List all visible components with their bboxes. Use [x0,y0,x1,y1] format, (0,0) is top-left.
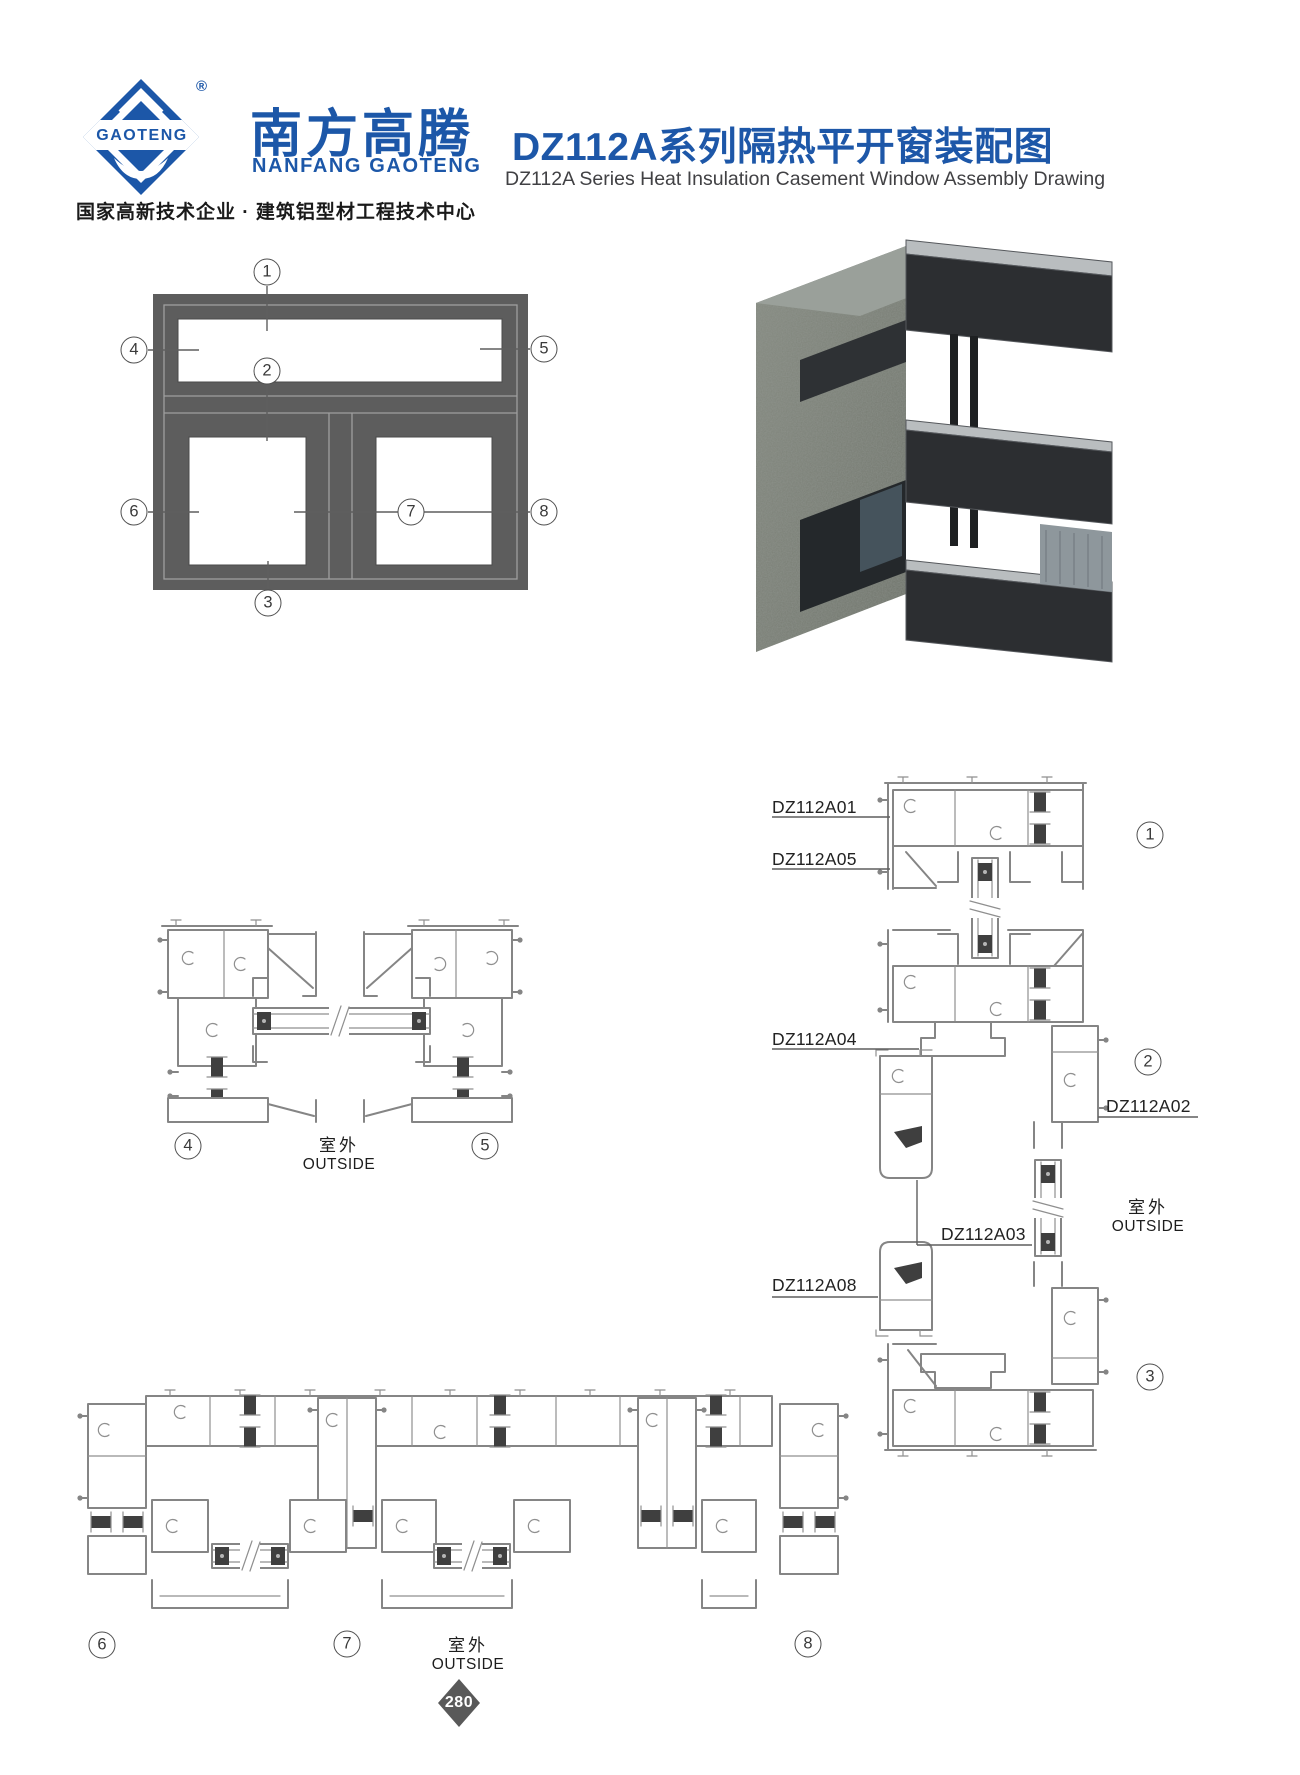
logo-wordmark: GAOTENG [94,127,190,145]
callout-label: 4 [129,341,138,360]
detail-callout-7: 7 [334,1631,361,1658]
callout-label: 4 [183,1137,192,1156]
callout-label: 5 [539,340,548,359]
callout-label: 2 [1143,1053,1152,1072]
elevation-callout-3: 3 [255,590,282,617]
elevation-callout-8: 8 [531,499,558,526]
page-number: 280 [445,1694,473,1712]
profile-label-dz112a03: DZ112A03 [941,1224,1026,1245]
callout-label: 7 [342,1635,351,1654]
detail-callout-4: 4 [175,1133,202,1160]
glazing-unit-vertical-2 [1032,1160,1064,1256]
callout-label: 7 [406,503,415,522]
callout-label: 6 [97,1636,106,1655]
brand-tagline: 国家高新技术企业 · 建筑铝型材工程技术中心 [76,197,476,224]
outside-label-en: OUTSIDE [432,1656,504,1674]
profile-label-dz112a02: DZ112A02 [1106,1096,1191,1117]
profile-label-dz112a04: DZ112A04 [772,1029,857,1050]
outside-label-cn: 室外 [1112,1193,1184,1218]
detail-callout-5: 5 [472,1133,499,1160]
callout-label: 3 [1145,1368,1154,1387]
section-detail-3 [876,1242,1109,1456]
profile-label-dz112a08: DZ112A08 [772,1275,857,1296]
callout-label: 6 [129,503,138,522]
outside-label-bottom: 室外 OUTSIDE [432,1631,504,1674]
outside-label-en: OUTSIDE [303,1156,375,1174]
detail-callout-6: 6 [89,1632,116,1659]
callout-label: 8 [803,1635,812,1654]
callout-label: 1 [1145,826,1154,845]
elevation-callout-5: 5 [531,336,558,363]
outside-label-en: OUTSIDE [1112,1218,1184,1236]
callout-label: 3 [263,594,272,613]
callout-label: 8 [539,503,548,522]
elevation-callout-4: 4 [121,337,148,364]
outside-label-cn: 室外 [432,1631,504,1656]
section-detail-6-7-8 [77,1390,848,1608]
doc-title-en: DZ112A Series Heat Insulation Casement W… [505,168,1065,191]
assembly-3d-render [756,240,1112,662]
callout-label: 2 [262,362,271,381]
elevation-callout-2: 2 [254,358,281,385]
callout-label: 1 [262,263,271,282]
outside-label-cn: 室外 [303,1131,375,1156]
profile-label-dz112a01: DZ112A01 [772,797,857,818]
detail-callout-8: 8 [795,1631,822,1658]
callout-label: 5 [480,1137,489,1156]
outside-label-mid: 室外 OUTSIDE [303,1131,375,1174]
profile-label-dz112a05: DZ112A05 [772,849,857,870]
elevation-callout-7: 7 [398,499,425,526]
section-detail-4-5 [157,920,522,1122]
catalog-page: GAOTENG ® 南方高腾 NANFANG GAOTENG 国家高新技术企业 … [0,0,1300,1775]
technical-drawing-canvas [0,0,1300,1775]
elevation-callout-1: 1 [254,259,281,286]
glazing-unit-vertical-1 [969,858,1001,958]
brand-name-en: NANFANG GAOTENG [252,155,482,178]
detail-callout-3: 3 [1137,1364,1164,1391]
elevation-callout-6: 6 [121,499,148,526]
outside-label-right: 室外 OUTSIDE [1112,1193,1184,1236]
detail-callout-1: 1 [1137,822,1164,849]
doc-title-cn: DZ112A系列隔热平开窗装配图 [512,116,1062,172]
section-detail-2 [876,930,1109,1178]
registered-mark-icon: ® [196,78,207,95]
detail-callout-2: 2 [1135,1049,1162,1076]
elevation-diagram [148,286,530,590]
